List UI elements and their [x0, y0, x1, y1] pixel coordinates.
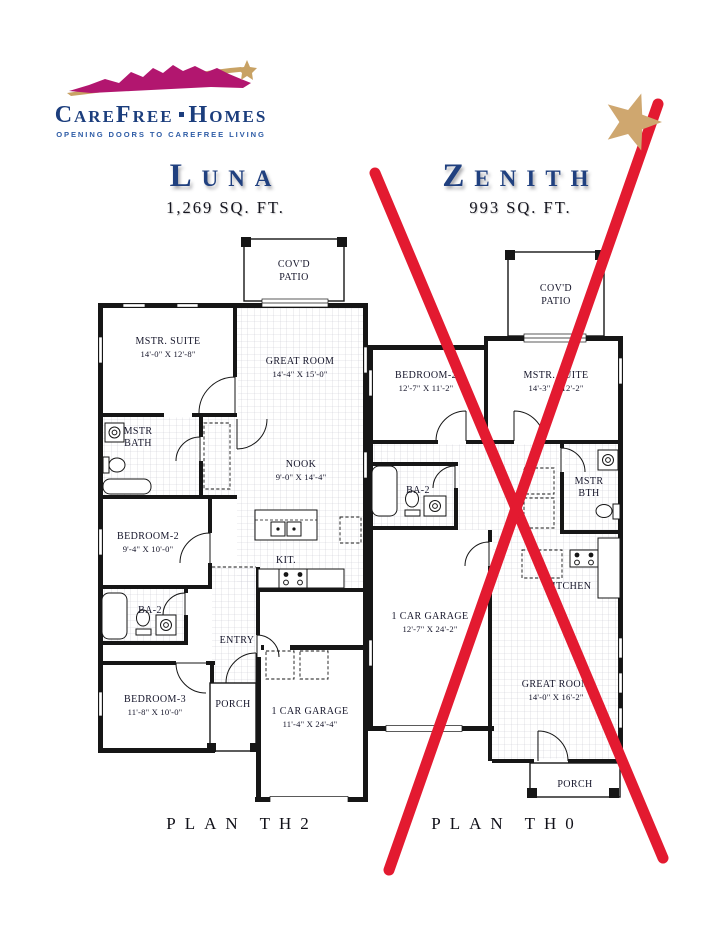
- toilet-tank: [103, 457, 109, 473]
- room-dims: 14'-3" X 12'-2": [528, 383, 583, 393]
- room-label: BA-2: [406, 485, 430, 496]
- room-label: PORCH: [557, 779, 592, 790]
- company-logo: CareFreeHomes OPENING DOORS TO CAREFREE …: [52, 60, 270, 139]
- toilet-tank: [613, 504, 620, 519]
- room-dims: 12'-7" X 24'-2": [402, 624, 457, 634]
- room-label: ENTRY: [220, 635, 255, 646]
- room-label: PATIO: [279, 272, 308, 283]
- room-dims: 9'-0" X 14'-4": [276, 472, 327, 482]
- dryer-dashed: [300, 651, 328, 679]
- stove-icon: [570, 550, 598, 567]
- tub-icon: [372, 466, 397, 516]
- kitchen-island: [255, 510, 317, 540]
- mountain-star-logo-icon: [61, 60, 261, 96]
- stove-icon: [279, 569, 307, 588]
- brand-name: CareFreeHomes: [52, 103, 270, 127]
- garage-door: [386, 726, 462, 732]
- room-label: KIT.: [276, 555, 296, 566]
- room-label: MSTR. SUITE: [136, 336, 201, 347]
- toilet-icon: [596, 505, 612, 518]
- room-label: BEDROOM-2: [117, 531, 179, 542]
- room-dims: 14'-4" X 15'-0": [272, 369, 327, 379]
- tub-icon: [102, 593, 127, 639]
- luna-porch-structure: [207, 683, 259, 752]
- room-label: BTH: [578, 488, 599, 499]
- garage-door: [270, 797, 348, 803]
- floor-plan-luna: COV'D PATIO MSTR. SUITE 14'-0" X 12'-8" …: [98, 237, 368, 802]
- room-dims: 11'-8" X 10'-0": [128, 707, 183, 717]
- room-label: PORCH: [215, 699, 250, 710]
- room-label: COV'D: [540, 283, 572, 294]
- plan-title-luna: Luna: [113, 160, 338, 193]
- kitchen-counter-and-stove: [258, 569, 344, 588]
- room-label: GREAT ROOM: [266, 356, 335, 367]
- room-dims: 14'-0" X 16'-2": [528, 692, 583, 702]
- room-label: NOOK: [286, 459, 317, 470]
- room-label: BEDROOM-3: [124, 694, 186, 705]
- gold-star-icon: [597, 85, 668, 154]
- room-label: BA-2: [138, 605, 162, 616]
- room-dims: 14'-0" X 12'-8": [140, 349, 195, 359]
- room-label: 1 CAR GARAGE: [391, 611, 468, 622]
- brand-tagline: OPENING DOORS TO CAREFREE LIVING: [52, 130, 270, 139]
- tub-icon: [103, 479, 151, 494]
- luna-title-block: Luna 1,269 SQ. FT.: [113, 160, 338, 218]
- room-label: MSTR. SUITE: [524, 370, 589, 381]
- room-label: MSTR: [124, 426, 153, 437]
- room-label: GREAT ROOM: [522, 679, 591, 690]
- room-dims: 11'-4" X 24'-4": [283, 719, 338, 729]
- washer-dashed: [266, 651, 294, 679]
- brand-dot: [179, 112, 184, 117]
- toilet-icon: [109, 458, 125, 472]
- room-label: BATH: [124, 438, 152, 449]
- room-dims: 12'-7" X 11'-2": [399, 383, 454, 393]
- plan-sqft-zenith: 993 SQ. FT.: [408, 198, 633, 218]
- plan-title-zenith: Zenith: [408, 160, 633, 193]
- plan-code-th0: PLAN TH0: [397, 814, 617, 834]
- room-dims: 9'-4" X 10'-0": [123, 544, 174, 554]
- room-label: COV'D: [278, 259, 310, 270]
- plan-code-th2: PLAN TH2: [132, 814, 352, 834]
- room-label: BEDROOM-2: [395, 370, 457, 381]
- brand-word-2: Homes: [189, 102, 268, 128]
- room-label: KITCHEN: [545, 581, 592, 592]
- floor-plan-zenith: COV'D PATIO BEDROOM-2 12'-7" X 11'-2" MS…: [368, 250, 623, 802]
- plan-sqft-luna: 1,269 SQ. FT.: [113, 198, 338, 218]
- zenith-title-block: Zenith 993 SQ. FT.: [408, 160, 633, 218]
- logo-star-icon: [237, 60, 257, 80]
- room-label: MSTR: [575, 476, 604, 487]
- room-label: PATIO: [541, 296, 570, 307]
- brand-word-1: CareFree: [55, 102, 174, 128]
- room-label: 1 CAR GARAGE: [271, 706, 348, 717]
